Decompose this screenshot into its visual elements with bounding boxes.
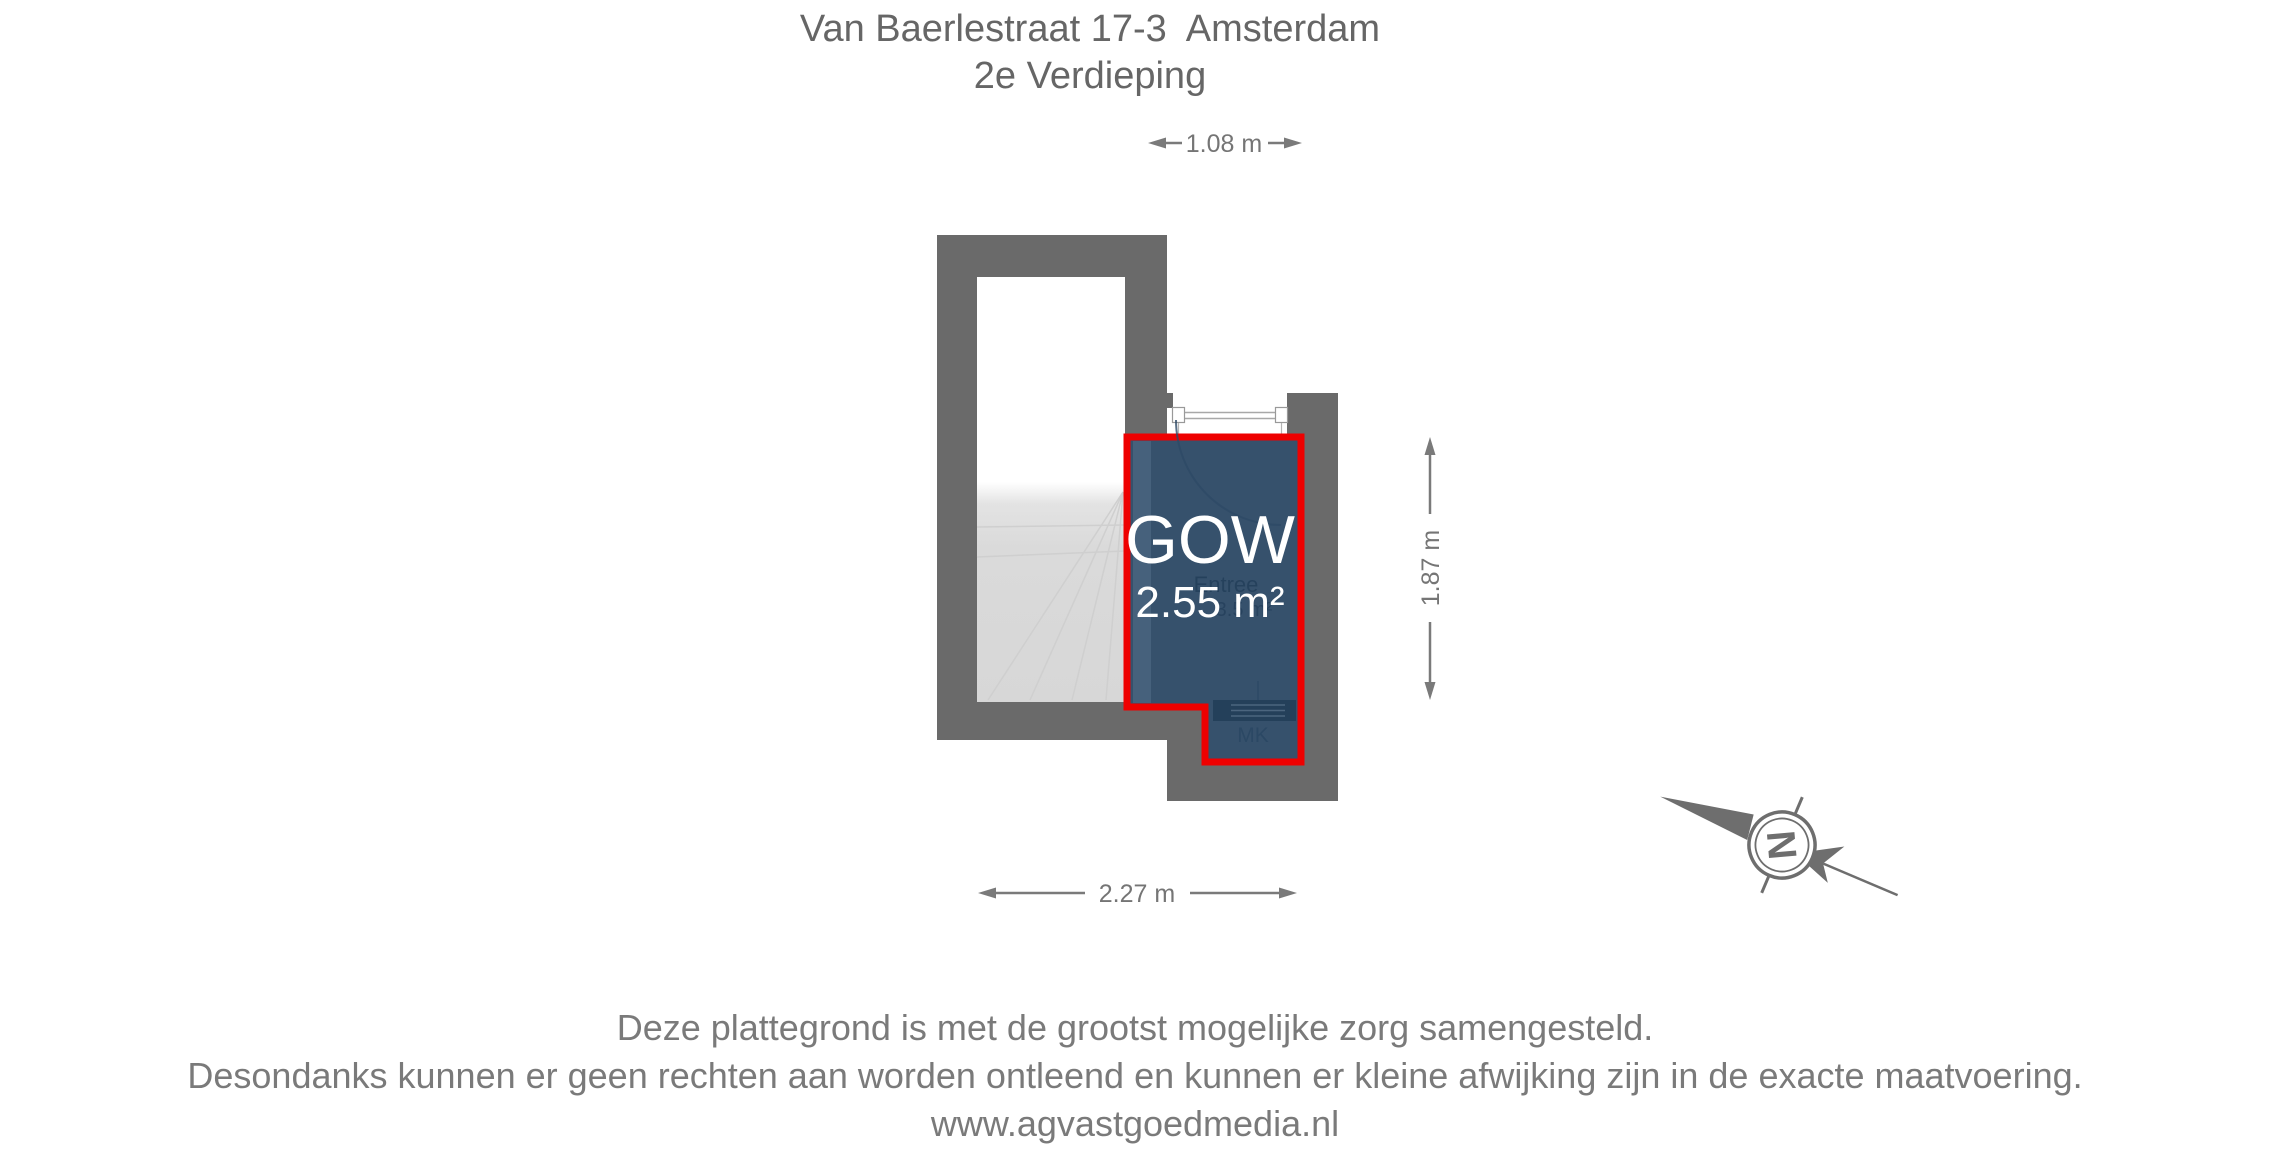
disclaimer: Deze plattegrond is met de grootst mogel… bbox=[0, 1004, 2270, 1148]
title-floor: 2e Verdieping bbox=[0, 53, 2180, 100]
stairwell-void bbox=[977, 277, 1125, 482]
arrow-down-icon bbox=[1425, 682, 1436, 700]
arrow-left-icon bbox=[1148, 138, 1166, 149]
north-compass-icon: N bbox=[1650, 770, 1910, 920]
dimension-right-label: 1.87 m bbox=[1417, 530, 1445, 606]
room-name-label: GOW bbox=[1125, 502, 1295, 578]
disclaimer-line-2: Desondanks kunnen er geen rechten aan wo… bbox=[0, 1052, 2270, 1100]
floorplan-page: Van Baerlestraat 17-3 Amsterdam 2e Verdi… bbox=[0, 0, 2270, 1162]
wall-step bbox=[1167, 393, 1173, 408]
arrow-up-icon bbox=[1425, 437, 1436, 455]
arrow-right-icon bbox=[1279, 888, 1297, 899]
website-label: www.agvastgoedmedia.nl bbox=[0, 1100, 2270, 1148]
compass-north-label: N bbox=[1758, 829, 1804, 862]
meter-closet-label: MK bbox=[1237, 724, 1269, 747]
dimension-top-label: 1.08 m bbox=[1186, 130, 1262, 158]
floorplan-drawing: Entree 3.5 m² MK GOW 2.55 m² 1.08 m 1.87… bbox=[900, 100, 1500, 950]
entrance-door bbox=[1173, 408, 1288, 435]
door-jamb-right bbox=[1276, 408, 1288, 423]
compass-needle bbox=[1658, 778, 1757, 840]
door-jamb-left bbox=[1173, 408, 1185, 423]
arrow-right-icon bbox=[1284, 138, 1302, 149]
disclaimer-line-1: Deze plattegrond is met de grootst mogel… bbox=[0, 1004, 2270, 1052]
plan-title: Van Baerlestraat 17-3 Amsterdam 2e Verdi… bbox=[0, 6, 2180, 100]
room-area-label: 2.55 m² bbox=[1135, 578, 1284, 627]
title-address: Van Baerlestraat 17-3 Amsterdam bbox=[0, 6, 2180, 53]
staircase bbox=[977, 482, 1125, 702]
arrow-left-icon bbox=[978, 888, 996, 899]
dimension-bottom-label: 2.27 m bbox=[1099, 880, 1175, 908]
